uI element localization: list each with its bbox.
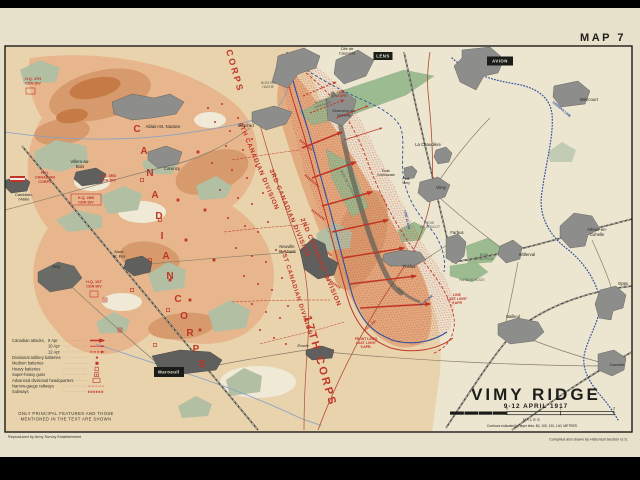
village-label: Carency (164, 166, 181, 171)
map-number: MAP 7 (580, 32, 626, 44)
canadian-corps-flag (10, 180, 25, 182)
divisional-battery-symbol (243, 275, 245, 277)
divisional-battery-symbol (257, 231, 259, 233)
divisional-battery-symbol (265, 311, 267, 313)
village-label: Acq (52, 264, 60, 269)
medium-battery-symbol (197, 151, 200, 154)
city-label-text: LENS (376, 54, 389, 59)
divisional-battery-symbol (246, 177, 248, 179)
village-label: Bailleul (506, 314, 520, 319)
village-label: Ablain-St. Nazaire (146, 124, 181, 129)
canadian-corps-arc-letter: R (186, 328, 194, 339)
book-photo: MAP 7 (0, 0, 640, 480)
divisional-battery-symbol (265, 261, 267, 263)
village-label: Oppy (618, 281, 629, 286)
map-canvas: 1ST CORPS17TH CORPSCANADIANCORPS4TH CANA… (5, 20, 632, 432)
village-label: Écurie (297, 343, 309, 348)
divisional-battery-symbol (262, 192, 264, 194)
canadian-corps-arc-letter: S (199, 359, 206, 370)
legend-item-label: Subways (12, 389, 29, 394)
medium-battery-symbol (199, 329, 202, 332)
canadian-corps-arc-letter: I (161, 231, 164, 242)
canadian-corps-flag (10, 176, 25, 178)
divisional-battery-symbol (251, 203, 253, 205)
canadian-corps-arc-letter: A (140, 146, 147, 157)
scale-tick-label: 0 (506, 407, 508, 411)
legend-note-line2: MENTIONED IN THE TEXT ARE SHOWN (21, 417, 112, 422)
legend-note-line1: ONLY PRINCIPAL FEATURES AND THOSE (18, 411, 114, 416)
divisional-battery-symbol (214, 121, 216, 123)
divisional-battery-symbol (244, 225, 246, 227)
legend-item-date: 10 Apr (48, 344, 60, 349)
village-label: Vimy (436, 185, 447, 190)
legend-item-label: Divisional artillery batteries (12, 355, 61, 360)
divisional-battery-symbol (207, 107, 209, 109)
village-label: Willerval (519, 252, 535, 257)
divisional-battery-symbol (242, 149, 244, 151)
canadian-corps-arc-letter: O (180, 311, 188, 322)
scale-tick-label: 1 (559, 407, 561, 411)
medium-battery-symbol (213, 259, 216, 262)
divisional-battery-symbol (279, 317, 281, 319)
divisional-battery-symbol (211, 162, 213, 164)
wood-label: FARBUS WOOD (459, 278, 485, 282)
city-label-text: AVION (492, 59, 508, 64)
legend-item-label: Advanced divisional headquarters (12, 378, 73, 383)
map-title: VIMY RIDGE (471, 385, 601, 404)
divisional-battery-symbol (221, 103, 223, 105)
canadian-corps-arc-letter: A (162, 251, 169, 262)
divisional-battery-symbol (251, 255, 253, 257)
divisional-battery-symbol (225, 145, 227, 147)
divisional-battery-symbol (237, 117, 239, 119)
divisional-battery-symbol (259, 329, 261, 331)
divisional-battery-symbol (229, 130, 231, 132)
vimy-ridge-map: MAP 7 (0, 0, 640, 480)
divisional-battery-symbol (271, 289, 273, 291)
divisional-battery-symbol (237, 197, 239, 199)
scale-unit: MILES (523, 417, 541, 422)
hq-label: H.Q. 2NDCDN DIV (78, 196, 95, 204)
legend-item-label: Medium batteries (12, 361, 43, 366)
legend-item-label: Canadian attacks, (12, 338, 45, 343)
divisional-battery-symbol (235, 247, 237, 249)
canadian-corps-arc-letter: A (151, 190, 158, 201)
canadian-corps-arc-letter: D (155, 211, 162, 222)
medium-battery-symbol (185, 239, 188, 242)
village-label: Gavrelle (610, 362, 626, 367)
credit-left: Reproduced by Army Survey Establishment (8, 435, 82, 439)
legend-item-date: 9 Apr (48, 338, 58, 343)
legend-item-label: Heavy batteries (12, 366, 40, 371)
canadian-corps-arc-letter: C (133, 124, 140, 135)
divisional-battery-symbol (267, 221, 269, 223)
divisional-battery-symbol (285, 343, 287, 345)
canadian-corps-arc-letter: P (193, 344, 200, 355)
divisional-battery-symbol (251, 303, 253, 305)
contours-note: Contours indicated by layer tints: 80, 1… (487, 424, 578, 428)
legend-item-label: Super-heavy guns (12, 372, 45, 377)
divisional-battery-symbol (227, 217, 229, 219)
wood-label: BOIS ENHACHE (261, 81, 275, 89)
legend-symbol-dot (96, 357, 98, 359)
divisional-battery-symbol (231, 169, 233, 171)
super-heavy-gun-symbol (119, 329, 121, 331)
divisional-battery-symbol (275, 249, 277, 251)
village-label: Souchez (238, 123, 255, 128)
village-label: La Chaudière (415, 142, 441, 147)
village-label: PetitVimy (402, 177, 410, 185)
village-label: Méricourt (580, 97, 599, 102)
divisional-battery-symbol (273, 337, 275, 339)
hq-label: H.Q. 1STCDN DIV (86, 280, 103, 288)
divisional-battery-symbol (257, 283, 259, 285)
hq-label: H.Q. 3RDCDN DIV (100, 174, 117, 182)
canadian-corps-arc-letter: N (166, 271, 173, 282)
legend-item-label: Narrow-gauge railways (12, 384, 54, 389)
legend-symbol-super-heavy (96, 374, 98, 376)
village-label: Farbus (450, 230, 463, 235)
canadian-corps-arc-letter: C (174, 294, 181, 305)
medium-battery-symbol (177, 199, 180, 202)
medium-battery-symbol (189, 299, 192, 302)
scale-tick-label: 2 (613, 407, 615, 411)
divisional-battery-symbol (287, 305, 289, 307)
legend-symbol-square-filled (96, 362, 99, 365)
divisional-battery-symbol (281, 277, 283, 279)
super-heavy-gun-symbol (104, 299, 106, 301)
credit-right: Compiled and drawn by Historical Section… (549, 438, 628, 442)
legend-item-date: 12 Apr (48, 349, 60, 354)
canadian-corps-arc-letter: N (146, 168, 153, 179)
city-label-text: Maroeuil (158, 370, 180, 375)
hq-label: H.Q. 4THCDN DIV (25, 77, 41, 85)
canadian-corps-flag (10, 178, 25, 180)
divisional-battery-symbol (219, 189, 221, 191)
village-label: NeuvilleSt. Vaast (278, 244, 296, 254)
village-label: Thélus (403, 264, 416, 269)
medium-battery-symbol (204, 209, 207, 212)
